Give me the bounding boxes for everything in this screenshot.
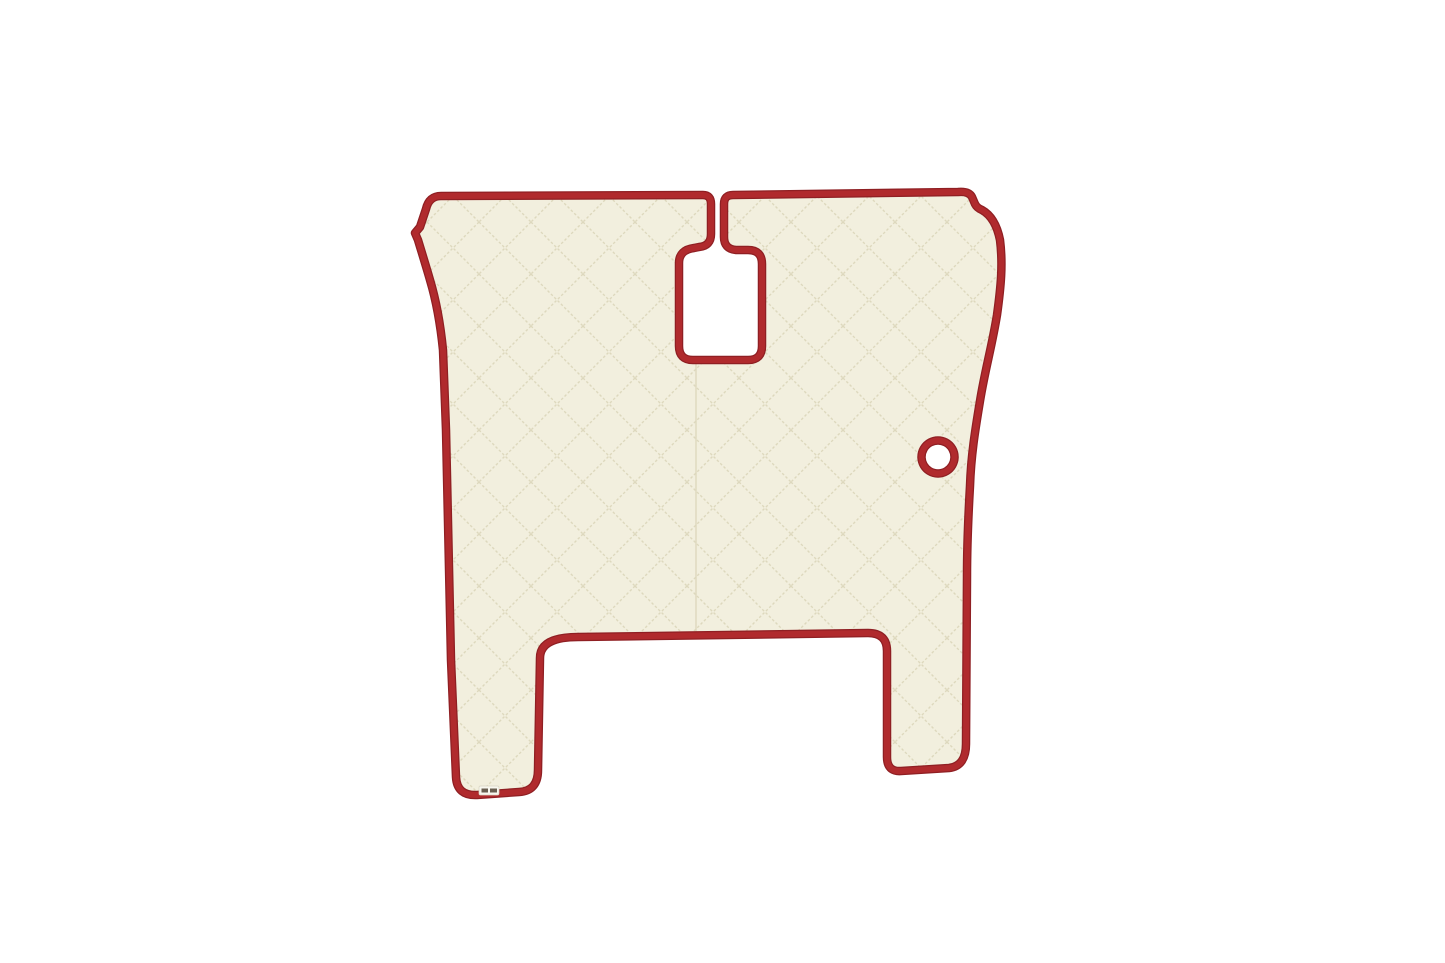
truck-floor-mat-image: [0, 0, 1445, 963]
brand-tag-mark-right: [490, 789, 497, 793]
brand-tag: [479, 786, 499, 795]
product-photo: [0, 0, 1445, 963]
brand-tag-mark-left: [482, 789, 489, 793]
